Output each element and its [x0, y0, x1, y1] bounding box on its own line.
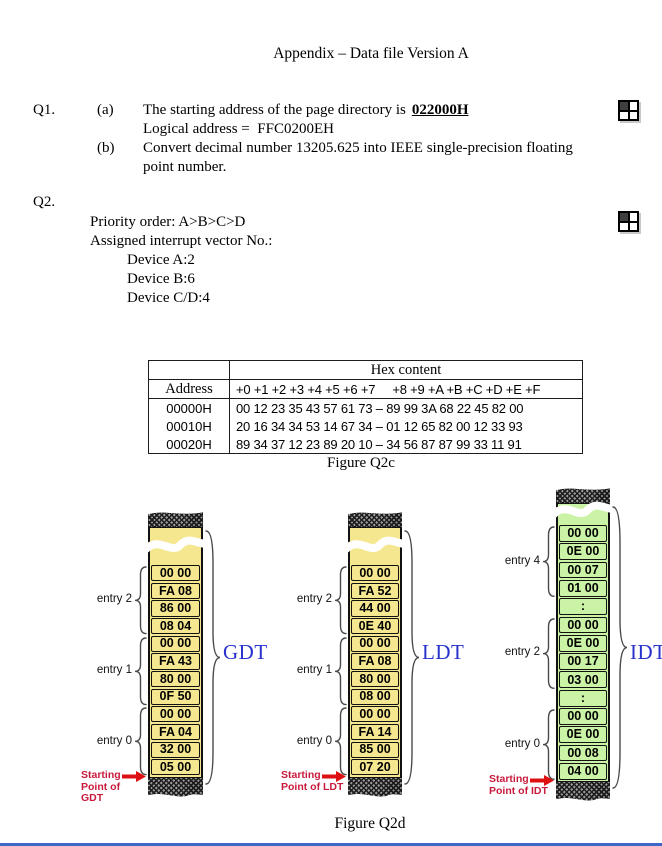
entry-label: entry 1 [58, 663, 132, 677]
memory-cell: FA 52 [351, 583, 399, 599]
memory-cell: 32 00 [151, 742, 200, 758]
memory-cell: FA 43 [151, 653, 200, 669]
break-wave [344, 534, 406, 558]
memory-cell: 00 00 [351, 706, 399, 722]
table-brace [612, 506, 628, 789]
document-page: Appendix – Data file Version A Q1. (a) T… [0, 0, 662, 846]
memory-cell: FA 08 [351, 653, 399, 669]
memory-cell: 0E 40 [351, 618, 399, 634]
starting-point-arrow [122, 771, 146, 782]
entry-label: entry 0 [466, 737, 540, 751]
memory-cell: FA 14 [351, 724, 399, 740]
memory-cell: 00 00 [351, 565, 399, 581]
memory-cell: 00 00 [351, 636, 399, 652]
table-name-label: GDT [223, 640, 268, 664]
torn-wave-top [554, 485, 612, 494]
memory-cell: 00 07 [559, 562, 607, 579]
memory-cell: 03 00 [559, 671, 607, 688]
starting-point-arrow [530, 775, 554, 786]
entry-label: entry 0 [258, 734, 332, 748]
memory-cell: FA 08 [151, 583, 200, 599]
starting-line2: Point of LDT [281, 782, 345, 794]
figure-q2d-caption: Figure Q2d [334, 814, 405, 833]
memory-cell: 00 00 [151, 706, 200, 722]
entry-brace [542, 709, 555, 780]
starting-line2: Point of GDT [81, 782, 145, 805]
figure-q2d: 00 00FA 0886 0008 0400 00FA 4380 000F 50… [0, 0, 662, 846]
memory-cell: 00 00 [151, 565, 200, 581]
memory-cell: 00 00 [151, 636, 200, 652]
entry-label: entry 0 [58, 734, 132, 748]
break-wave [144, 534, 207, 558]
starting-line2: Point of IDT [489, 786, 553, 798]
entry-brace [134, 637, 147, 706]
table-name-label: IDT [630, 640, 662, 664]
memory-cell: 08 00 [351, 689, 399, 705]
memory-cell: 00 00 [559, 617, 607, 634]
starting-point-arrow [322, 771, 346, 782]
memory-cell: 80 00 [151, 671, 200, 687]
torn-wave-top [146, 509, 205, 518]
entry-label: entry 1 [258, 663, 332, 677]
entry-label: entry 2 [258, 592, 332, 606]
break-wave [552, 499, 614, 523]
entry-label: entry 2 [466, 645, 540, 659]
entry-brace [542, 526, 555, 597]
memory-cell: : [559, 690, 607, 707]
entry-brace [334, 637, 347, 706]
entry-brace [134, 566, 147, 635]
memory-cell: 00 00 [559, 525, 607, 542]
memory-cell: 0E 00 [559, 635, 607, 652]
entry-brace [542, 618, 555, 689]
table-name-label: LDT [422, 640, 464, 664]
memory-cell: 44 00 [351, 600, 399, 616]
torn-wave-top [346, 509, 404, 518]
table-brace [205, 530, 221, 785]
table-brace [404, 530, 420, 785]
torn-wave-bottom [554, 796, 612, 806]
memory-cell: 08 04 [151, 618, 200, 634]
entry-brace [334, 707, 347, 776]
torn-wave-bottom [346, 792, 404, 802]
memory-cell: 00 00 [559, 708, 607, 725]
memory-cell: 00 08 [559, 745, 607, 762]
memory-cell: : [559, 598, 607, 615]
entry-brace [334, 566, 347, 635]
memory-cell: FA 04 [151, 724, 200, 740]
memory-cell: 80 00 [351, 671, 399, 687]
memory-cell: 00 17 [559, 653, 607, 670]
memory-cell: 01 00 [559, 580, 607, 597]
memory-cell: 04 00 [559, 763, 607, 780]
memory-cell: 86 00 [151, 600, 200, 616]
memory-cell: 07 20 [351, 759, 399, 775]
memory-cell: 0E 00 [559, 543, 607, 560]
torn-wave-bottom [146, 792, 205, 802]
entry-brace [134, 707, 147, 776]
memory-cell: 05 00 [151, 759, 200, 775]
entry-label: entry 4 [466, 554, 540, 568]
entry-label: entry 2 [58, 592, 132, 606]
memory-cell: 0F 50 [151, 689, 200, 705]
memory-cell: 0E 00 [559, 726, 607, 743]
memory-cell: 85 00 [351, 742, 399, 758]
